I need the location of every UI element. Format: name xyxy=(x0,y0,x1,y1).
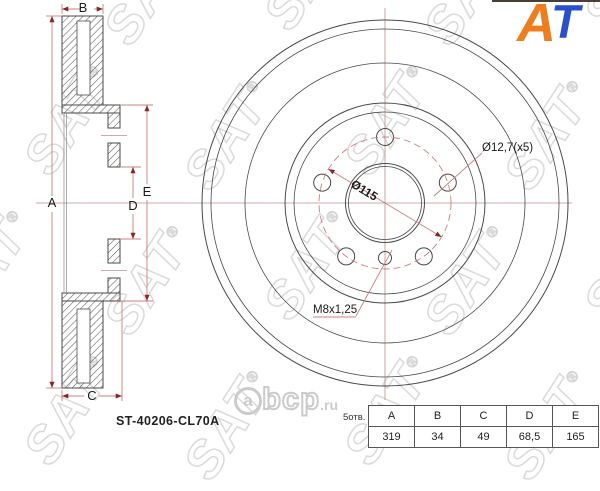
top-edge-strip xyxy=(492,0,600,2)
brake-disc-technical-drawing xyxy=(0,0,600,450)
section-hat-band-bottom xyxy=(62,293,120,301)
bolt-hole-diameter-label: Ø12,7(x5) xyxy=(482,142,533,154)
spec-table-header-row: A B C D E xyxy=(369,406,599,427)
spec-value-c: 49 xyxy=(461,427,507,448)
bolt-hole xyxy=(415,248,432,265)
bolt-hole xyxy=(314,174,331,191)
dimension-label-c: C xyxy=(85,389,99,403)
section-vent-slot-top xyxy=(77,21,90,95)
spec-value-b: 34 xyxy=(415,427,461,448)
thread-label: M8x1,25 xyxy=(313,304,357,316)
spec-table: A B C D E 319 34 49 68,5 165 xyxy=(368,405,599,448)
section-vent-slot-bottom xyxy=(77,309,90,383)
section-hat-band-top xyxy=(62,105,120,113)
holes-count-note: 5отв. xyxy=(343,411,365,425)
part-number: ST-40206-CL70A xyxy=(116,414,220,428)
spec-value-a: 319 xyxy=(369,427,415,448)
at-logo-letter-t: T xyxy=(551,0,580,49)
dimension-label-a: A xyxy=(45,196,59,210)
spec-value-e: 165 xyxy=(553,427,599,448)
spec-header-e: E xyxy=(553,406,599,427)
centerlines xyxy=(36,8,572,400)
spec-table-value-row: 319 34 49 68,5 165 xyxy=(369,427,599,448)
front-view-dimensions xyxy=(313,137,482,317)
spec-header-b: B xyxy=(415,406,461,427)
spec-header-d: D xyxy=(507,406,553,427)
dimension-label-b: B xyxy=(76,1,90,15)
spec-header-c: C xyxy=(461,406,507,427)
m8-leader xyxy=(356,250,392,316)
at-logo: A T xyxy=(515,0,600,56)
dimension-label-e: E xyxy=(140,185,154,199)
dimension-label-d: D xyxy=(126,199,140,213)
spec-value-d: 68,5 xyxy=(507,427,553,448)
section-view xyxy=(62,16,120,388)
spec-header-a: A xyxy=(369,406,415,427)
